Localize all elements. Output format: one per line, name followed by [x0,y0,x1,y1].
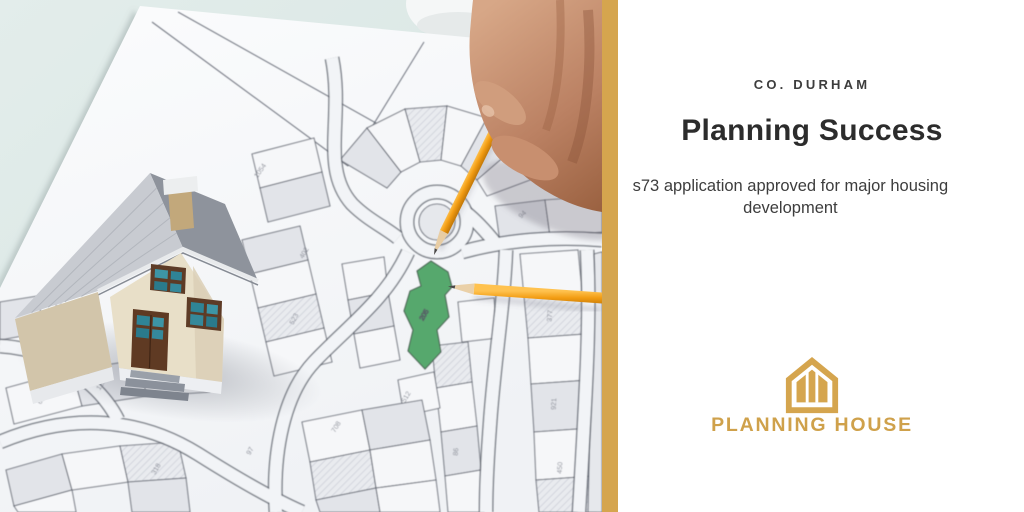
page-title: Planning Success [618,114,1006,148]
text-panel: CO. DURHAM Planning Success s73 applicat… [618,0,1024,512]
gable-window [150,264,186,294]
brand-name: PLANNING HOUSE [618,414,1006,437]
gold-divider [602,0,618,512]
parcel-label: 86 [453,448,461,456]
front-door [131,309,169,371]
brand-logo [618,356,1006,421]
house-icon [783,356,841,416]
location-eyebrow: CO. DURHAM [618,77,1006,92]
planning-success-banner: 1054 402 523 1432 604 1203 318 97 708 51… [0,0,1024,512]
map-photo: 1054 402 523 1432 604 1203 318 97 708 51… [0,0,602,512]
front-window [186,297,222,331]
parcel-label: 921 [551,398,558,410]
subtitle: s73 application approved for major housi… [620,176,960,220]
parcel-label: 377 [547,310,555,322]
parcel-label: 450 [557,462,565,474]
